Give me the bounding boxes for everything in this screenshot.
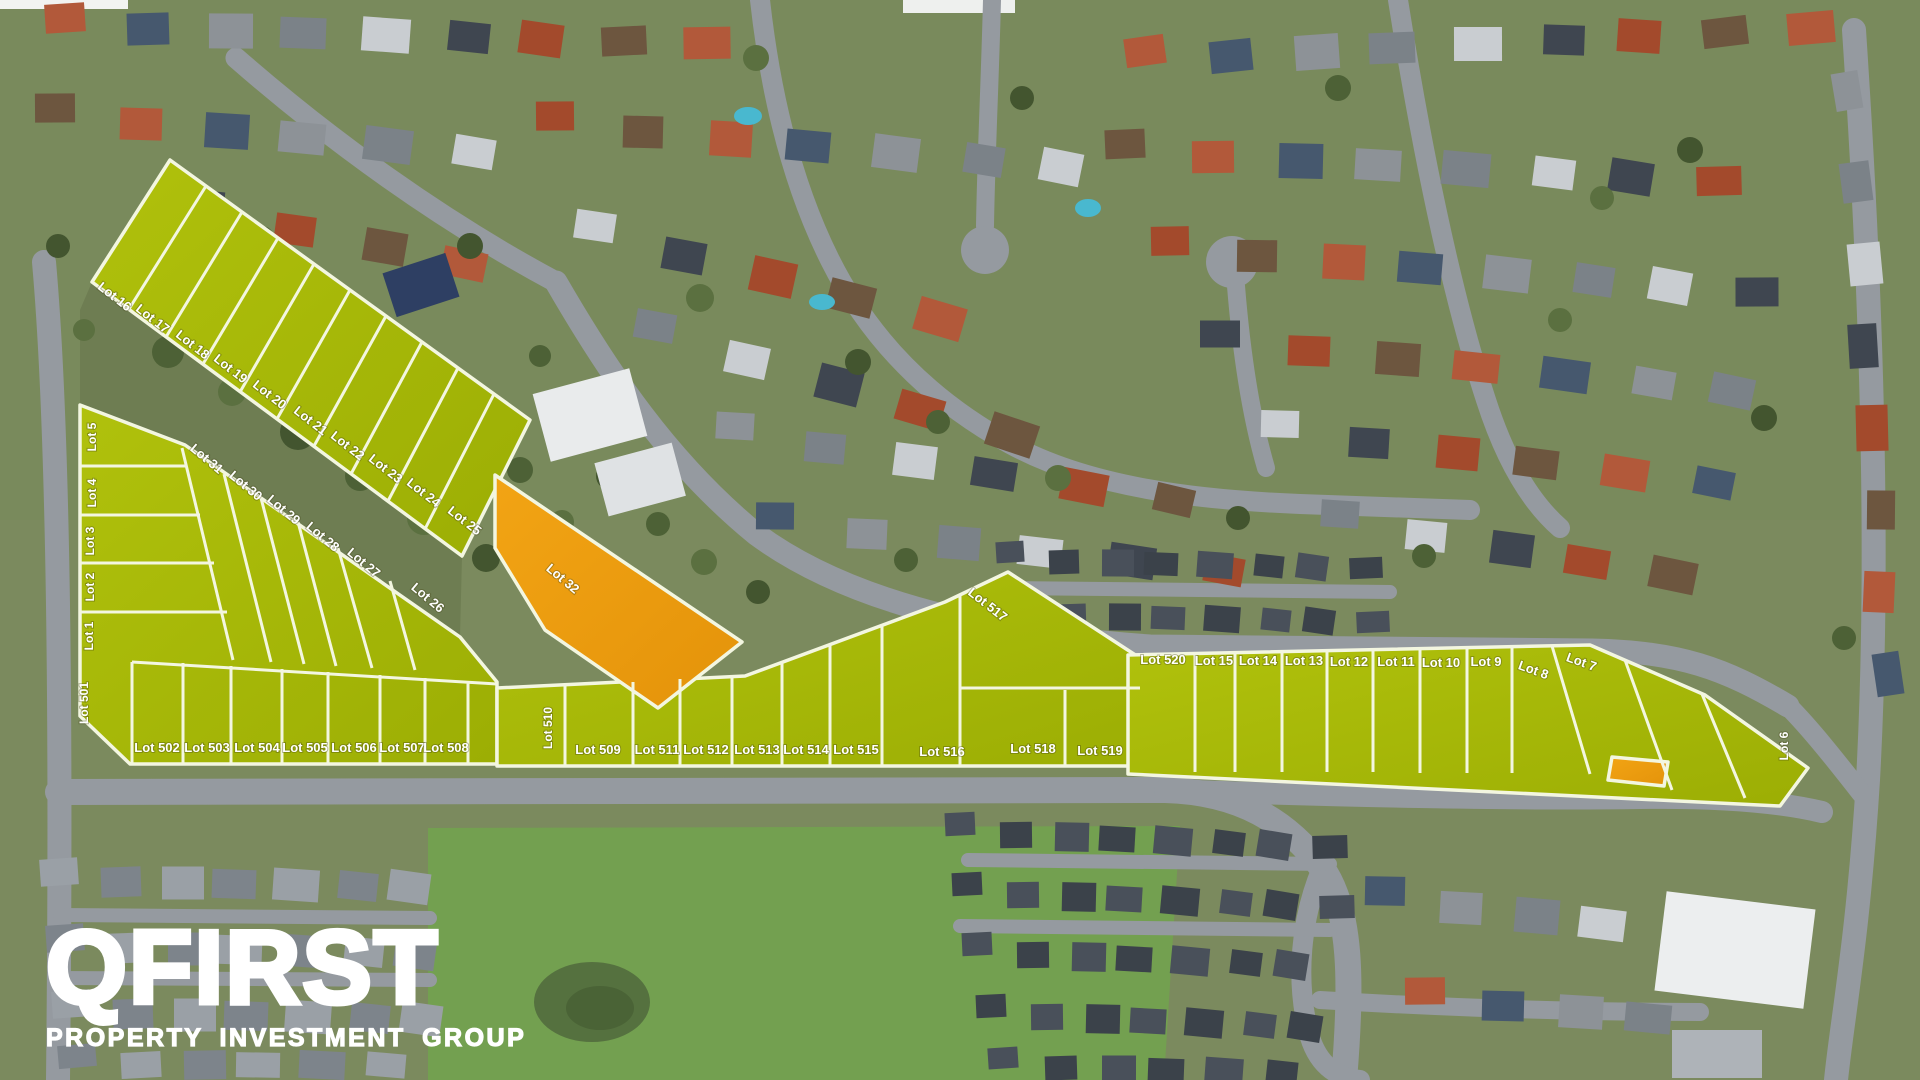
house-roof: [1452, 350, 1501, 384]
lot-label: Lot 519: [1077, 743, 1123, 758]
house-roof: [1312, 835, 1348, 859]
house-roof: [1148, 1058, 1185, 1080]
lot-label: Lot 509: [575, 742, 621, 757]
house-roof: [1153, 825, 1193, 856]
house-roof: [1049, 550, 1080, 575]
house-roof: [236, 1052, 280, 1078]
park-pond-center: [566, 986, 634, 1030]
house-roof: [1295, 552, 1329, 581]
house-roof: [1062, 882, 1097, 912]
lot-label: Lot 3: [83, 526, 97, 555]
house-roof: [1287, 1011, 1324, 1043]
house-roof: [1439, 891, 1483, 925]
aerial-map-svg: Lot 16 Lot 17 Lot 18 Lot 19 Lot 20 Lot 2…: [0, 0, 1920, 1080]
lot-label: Lot 501: [77, 682, 91, 724]
house-roof: [1105, 885, 1142, 912]
house-roof: [785, 128, 832, 163]
house-roof: [204, 112, 250, 150]
house-roof: [1208, 38, 1253, 74]
house-roof: [1123, 34, 1167, 68]
house-roof: [1294, 33, 1340, 71]
house-roof: [393, 935, 438, 971]
house-roof: [1607, 157, 1655, 197]
tree: [646, 512, 670, 536]
house-roof: [1055, 822, 1090, 852]
house-roof: [975, 994, 1006, 1018]
house-roof: [1454, 27, 1502, 61]
lot-label: Lot 14: [1239, 653, 1278, 668]
lot-label: Lot 508: [423, 740, 469, 755]
house-roof: [1260, 607, 1291, 632]
lot-label: Lot 11: [1377, 654, 1415, 669]
house-roof: [120, 107, 163, 140]
house-roof: [1735, 277, 1778, 306]
tree: [1010, 86, 1034, 110]
house-roof: [1354, 148, 1402, 182]
house-roof: [45, 923, 85, 953]
house-roof: [1184, 1007, 1224, 1038]
lot-label: Lot 12: [1330, 654, 1368, 669]
house-roof: [298, 1050, 345, 1080]
house-roof: [1261, 410, 1300, 438]
lot-label: Lot 502: [134, 740, 180, 755]
house-roof: [387, 869, 432, 905]
lot-label: Lot 511: [635, 742, 680, 757]
house-roof: [1322, 243, 1366, 280]
house-roof: [1512, 446, 1559, 480]
house-roof: [937, 525, 981, 561]
house-roof: [1489, 530, 1535, 568]
house-roof: [1265, 1059, 1298, 1080]
lot-label: Lot 2: [83, 572, 97, 601]
house-roof: [1200, 320, 1240, 347]
house-roof: [1302, 606, 1336, 635]
house-roof: [1086, 1004, 1121, 1034]
house-roof: [1237, 240, 1277, 273]
house-roof: [1102, 1055, 1136, 1080]
house-roof: [1151, 226, 1190, 256]
lot-label: Lot 5: [85, 422, 99, 451]
house-roof: [112, 998, 153, 1029]
tree: [691, 549, 717, 575]
house-roof: [1229, 949, 1263, 977]
tree: [1412, 544, 1436, 568]
house-roof: [892, 442, 938, 480]
house-roof: [209, 13, 253, 48]
house-roof: [1616, 18, 1661, 54]
house-roof: [57, 1043, 97, 1069]
house-roof: [1397, 251, 1443, 286]
lot-label: Lot 505: [282, 740, 328, 755]
house-roof: [517, 20, 564, 59]
house-roof: [1007, 882, 1039, 908]
house-roof: [184, 1050, 227, 1080]
tree: [1751, 405, 1777, 431]
house-roof: [623, 116, 664, 149]
house-roof: [601, 25, 647, 56]
house-roof: [709, 120, 753, 157]
tree: [686, 284, 714, 312]
lot-label: Lot 1: [82, 621, 96, 650]
house-roof: [1482, 254, 1532, 293]
house-roof: [127, 12, 170, 45]
house-roof: [987, 1047, 1018, 1070]
small-highlighted-lot-right: [1608, 757, 1668, 786]
house-roof: [1017, 942, 1049, 968]
house-roof: [1624, 1001, 1673, 1034]
lot-label: Lot 507: [379, 740, 425, 755]
house-roof: [715, 411, 754, 440]
house-roof: [1144, 552, 1179, 576]
house-roof: [1532, 155, 1577, 190]
house-roof: [683, 27, 730, 60]
lot-label: Lot 504: [234, 740, 280, 755]
house-roof: [1319, 895, 1355, 919]
house-roof: [1786, 10, 1836, 46]
house-roof: [174, 998, 216, 1031]
lot-label: Lot 514: [783, 742, 829, 757]
house-roof: [1256, 829, 1293, 861]
lot-label: Lot 512: [683, 742, 729, 757]
house-roof: [1539, 356, 1591, 394]
house-roof: [1279, 143, 1324, 179]
tree: [1590, 186, 1614, 210]
house-roof: [1482, 990, 1525, 1021]
tree: [1832, 626, 1856, 650]
house-roof: [362, 125, 414, 165]
lot-label: Lot 506: [331, 740, 377, 755]
tree: [73, 319, 95, 341]
house-roof: [1045, 1055, 1078, 1080]
house-roof: [343, 936, 385, 968]
house-roof: [1348, 427, 1390, 459]
house-roof: [1287, 335, 1330, 366]
house-roof: [51, 989, 91, 1019]
house-roof: [1441, 150, 1492, 188]
house-roof: [1375, 341, 1421, 377]
tree: [1045, 465, 1071, 491]
tree: [529, 345, 551, 367]
house-roof: [1000, 822, 1032, 848]
road-culdesac-stem-2: [985, 0, 992, 226]
pool-2: [1075, 199, 1101, 217]
lot-label: Lot 15: [1195, 653, 1233, 668]
house-roof: [1368, 32, 1415, 65]
house-roof: [100, 866, 141, 897]
house-roof: [962, 142, 1005, 178]
house-roof: [1219, 889, 1253, 917]
house-roof: [1031, 1004, 1063, 1030]
house-roof: [1577, 906, 1626, 942]
tree: [46, 234, 70, 258]
house-roof: [1839, 160, 1874, 204]
house-roof: [1543, 24, 1585, 55]
house-roof: [1151, 606, 1186, 630]
house-roof: [1863, 571, 1896, 613]
aerial-masterplan-image: Lot 16 Lot 17 Lot 18 Lot 19 Lot 20 Lot 2…: [0, 0, 1920, 1080]
house-roof: [399, 1001, 444, 1037]
house-roof: [1320, 499, 1360, 528]
house-roof: [1514, 897, 1561, 936]
house-roof: [44, 2, 86, 34]
road-estate-left-1: [60, 915, 430, 918]
road-estate-south-2: [960, 926, 1330, 930]
house-roof: [573, 209, 617, 244]
house-roof: [1160, 885, 1200, 916]
lot-label: Lot 510: [541, 707, 555, 749]
house-roof: [1115, 945, 1152, 972]
pool-3: [809, 294, 835, 310]
house-roof: [39, 857, 79, 887]
house-roof: [1170, 945, 1210, 976]
lot-label: Lot 518: [1010, 741, 1056, 756]
tree: [926, 410, 950, 434]
tree: [1325, 75, 1351, 101]
warehouse-gray: [1672, 1030, 1762, 1078]
lot-label: Lot 516: [919, 744, 965, 759]
house-roof: [1349, 557, 1383, 580]
house-roof: [447, 20, 491, 54]
lot-label: Lot 9: [1470, 654, 1501, 669]
lot-label: Lot 13: [1285, 653, 1323, 668]
house-roof: [162, 866, 204, 899]
house-roof: [995, 541, 1024, 564]
house-roof: [536, 101, 574, 130]
tree: [1226, 506, 1250, 530]
house-roof: [168, 932, 210, 965]
house-roof: [120, 1051, 161, 1079]
lot-label: Lot 10: [1422, 655, 1460, 670]
house-roof: [944, 812, 975, 836]
house-roof: [1365, 876, 1406, 906]
road-estate-south-1: [968, 860, 1330, 864]
tree: [743, 45, 769, 71]
house-roof: [1558, 994, 1604, 1030]
house-roof: [1405, 977, 1445, 1004]
house-roof: [279, 17, 326, 50]
house-roof: [35, 93, 75, 122]
house-roof: [361, 227, 408, 267]
tree: [746, 580, 770, 604]
house-roof: [337, 870, 379, 902]
warehouse-white: [1654, 891, 1815, 1009]
house-roof: [106, 932, 147, 963]
house-roof: [1696, 166, 1742, 196]
house-roof: [1243, 1011, 1277, 1039]
lot-label: Lot 515: [833, 742, 879, 757]
lot-label: Lot 4: [85, 478, 99, 507]
house-roof: [1436, 435, 1481, 472]
house-roof: [218, 935, 263, 965]
tree: [845, 349, 871, 375]
house-roof: [951, 872, 982, 896]
house-roof: [1263, 889, 1300, 921]
house-roof: [1129, 1007, 1166, 1034]
house-roof: [1701, 15, 1749, 49]
lot-label: Lot 503: [184, 740, 230, 755]
tree: [1677, 137, 1703, 163]
tree: [894, 548, 918, 572]
house-roof: [361, 16, 411, 53]
house-roof: [1572, 262, 1615, 298]
house-roof: [1204, 1057, 1244, 1080]
road-estate-north: [1010, 588, 1390, 592]
house-roof: [846, 518, 887, 550]
lot-label: Lot 6: [1777, 731, 1791, 760]
house-roof: [961, 932, 992, 956]
house-roof: [212, 869, 257, 899]
house-roof: [278, 120, 327, 155]
house-roof: [1104, 129, 1145, 160]
culdesac-middle: [961, 226, 1009, 274]
tree: [1548, 308, 1572, 332]
house-roof: [1212, 829, 1246, 857]
lot-label: Lot 520: [1140, 652, 1186, 667]
house-roof: [756, 502, 794, 529]
house-roof: [1847, 242, 1884, 287]
house-roof: [871, 133, 921, 173]
house-roof: [1855, 405, 1888, 452]
house-roof: [349, 1002, 391, 1034]
house-roof: [1102, 549, 1134, 576]
pool-1: [734, 107, 762, 125]
house-roof: [1098, 825, 1135, 852]
house-roof: [1356, 611, 1390, 634]
house-roof: [1109, 603, 1141, 630]
road-estate-left-2: [60, 978, 430, 980]
house-roof: [224, 1001, 269, 1031]
house-roof: [1847, 323, 1879, 369]
house-roof: [1192, 141, 1234, 173]
tree: [457, 233, 483, 259]
house-roof: [278, 933, 326, 968]
house-roof: [1867, 490, 1895, 529]
house-roof: [804, 431, 847, 465]
house-roof: [1273, 949, 1310, 981]
house-roof: [284, 999, 332, 1034]
lot-label: Lot 513: [734, 742, 780, 757]
house-roof: [366, 1051, 407, 1078]
house-roof: [1253, 553, 1284, 578]
house-roof: [272, 867, 320, 902]
house-roof: [1196, 551, 1234, 580]
house-roof: [1203, 605, 1241, 634]
house-roof: [1072, 942, 1107, 972]
